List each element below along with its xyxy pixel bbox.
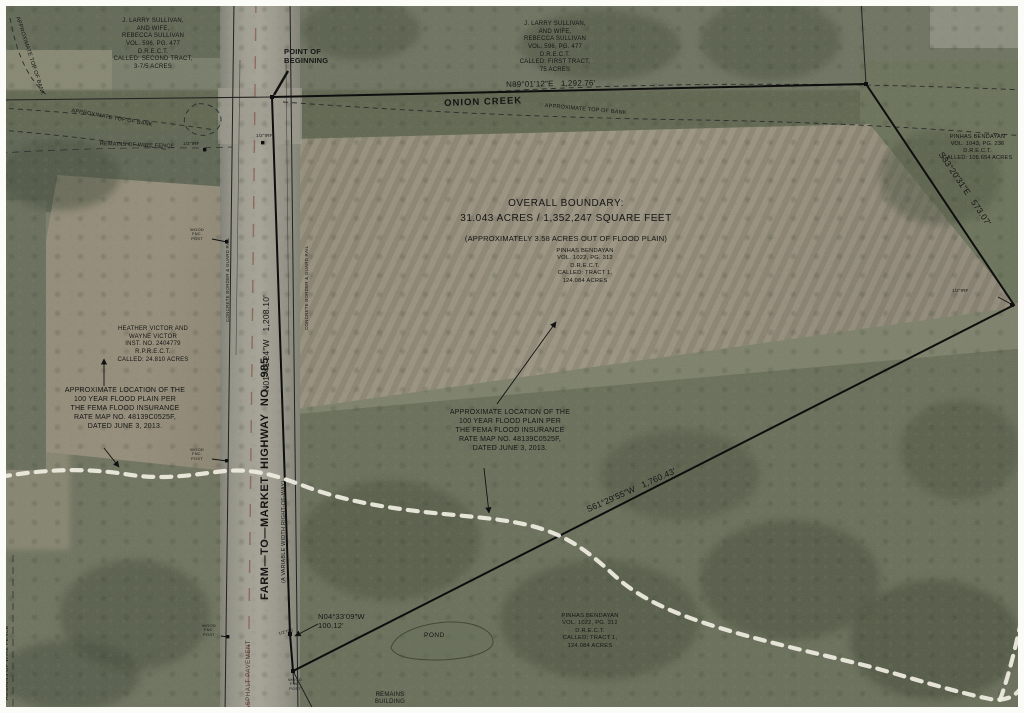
concrete-border-label: CONCRETE BORDER & GUARD RAIL	[225, 238, 231, 322]
irf-marker	[203, 148, 206, 151]
fence-post-marker	[225, 459, 228, 462]
irf-label: 1/2"IRF	[183, 141, 200, 147]
irf-marker	[261, 141, 264, 144]
asphalt-pavement-label: ASPHALT PAVEMENT	[246, 640, 254, 710]
highway-row-label: (A VARIABLE WIDTH RIGHT-OF-WAY)	[281, 481, 288, 583]
overall-boundary-title: OVERALL BOUNDARY:31.043 ACRES / 1,352,24…	[416, 197, 716, 226]
overall-boundary-line2: 31.043 ACRES / 1,352,247 SQUARE FEET	[460, 213, 671, 224]
wire-fence-label: REMAINS OF WIRE FENCE	[4, 626, 11, 700]
corner-marker-pob	[270, 95, 274, 99]
leader-line	[497, 322, 556, 404]
leader-line	[295, 624, 318, 636]
road-west-edge-line	[225, 0, 234, 713]
parcel-label-sullivan-first: J. LARRY SULLIVAN, AND WIFE, REBECCA SUL…	[490, 21, 620, 75]
wood-post-label: WOOD FNC. POST	[284, 678, 306, 691]
flood-plain-line	[0, 470, 1020, 699]
leader-line	[484, 468, 489, 513]
flood-out-note: (APPROXIMATELY 3.58 ACRES OUT OF FLOOD P…	[416, 234, 716, 244]
highway-name-label: FARM—TO—MARKET HIGHWAY NO. 985	[258, 357, 272, 600]
flood-location-note-left: APPROXIMATE LOCATION OF THE 100 YEAR FLO…	[33, 387, 217, 432]
wood-post-label: WOOD FNC. POST	[186, 448, 208, 461]
adjoiner-line	[861, 0, 866, 84]
wood-post-label: WOOD FNC. POST	[186, 228, 208, 241]
wood-post-label: WOOD FNC. POST	[198, 624, 220, 637]
survey-plat-over-aerial: { "labels": { "point_of_beginning": "POI…	[0, 0, 1024, 713]
corner-marker-east	[1010, 303, 1014, 307]
parcel-label-sullivan-second: J. LARRY SULLIVAN, AND WIFE, REBECCA SUL…	[93, 18, 213, 72]
fence-post-marker	[226, 635, 229, 638]
road-centerline	[248, 0, 256, 713]
road-east-edge-line	[290, 0, 298, 713]
boundary-line	[272, 84, 1014, 671]
remains-building-label: REMAINS BUILDING	[364, 692, 416, 706]
guard-rail-line-east	[286, 60, 289, 355]
parcel-label-bendayan-tract1: PINHAS BENDAYAN VOL. 1022, PG. 312 D.R.E…	[525, 248, 645, 285]
pob-leader-line	[274, 71, 288, 95]
flood-location-note-center: APPROXIMATE LOCATION OF THE 100 YEAR FLO…	[427, 409, 593, 454]
creek-bank-line	[283, 102, 1024, 136]
corner-marker-south	[291, 669, 295, 673]
creek-meander-line	[184, 104, 221, 136]
irf-label: 1/2"IRF	[256, 133, 273, 139]
pond-label: POND	[424, 632, 445, 640]
overall-boundary-line1: OVERALL BOUNDARY:	[508, 198, 624, 209]
leader-line	[104, 448, 119, 467]
pond-outline	[391, 622, 493, 660]
irf-label: 1/2"IRF	[952, 288, 969, 294]
leader-line	[212, 459, 227, 461]
point-of-beginning-label: POINT OF BEGINNING	[284, 48, 328, 65]
bearing-north-label: N89°01'12"E 1,292.76'	[506, 78, 595, 90]
concrete-border-label: CONCRETE BORDER & GUARD RAIL	[304, 246, 310, 330]
bearing-west-short-label: N04°33'09"W 100.12'	[318, 612, 365, 630]
parcel-label-bendayan-tract1-south: PINHAS BENDAYAN VOL. 1022, PG. 312 D.R.E…	[530, 613, 650, 650]
parcel-label-victor: HEATHER VICTOR AND WAYNE VICTOR INST. NO…	[88, 326, 218, 364]
adjoiner-line	[0, 97, 272, 100]
guard-rail-line-west	[236, 60, 240, 355]
corner-marker-ne	[864, 82, 868, 86]
